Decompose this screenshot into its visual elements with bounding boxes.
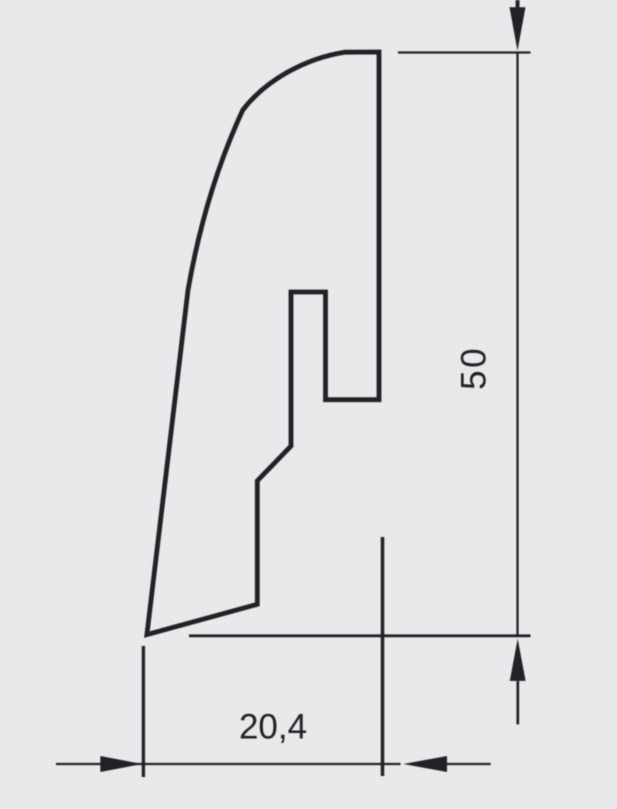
svg-text:20,4: 20,4 (239, 708, 307, 747)
svg-text:50: 50 (454, 346, 493, 390)
